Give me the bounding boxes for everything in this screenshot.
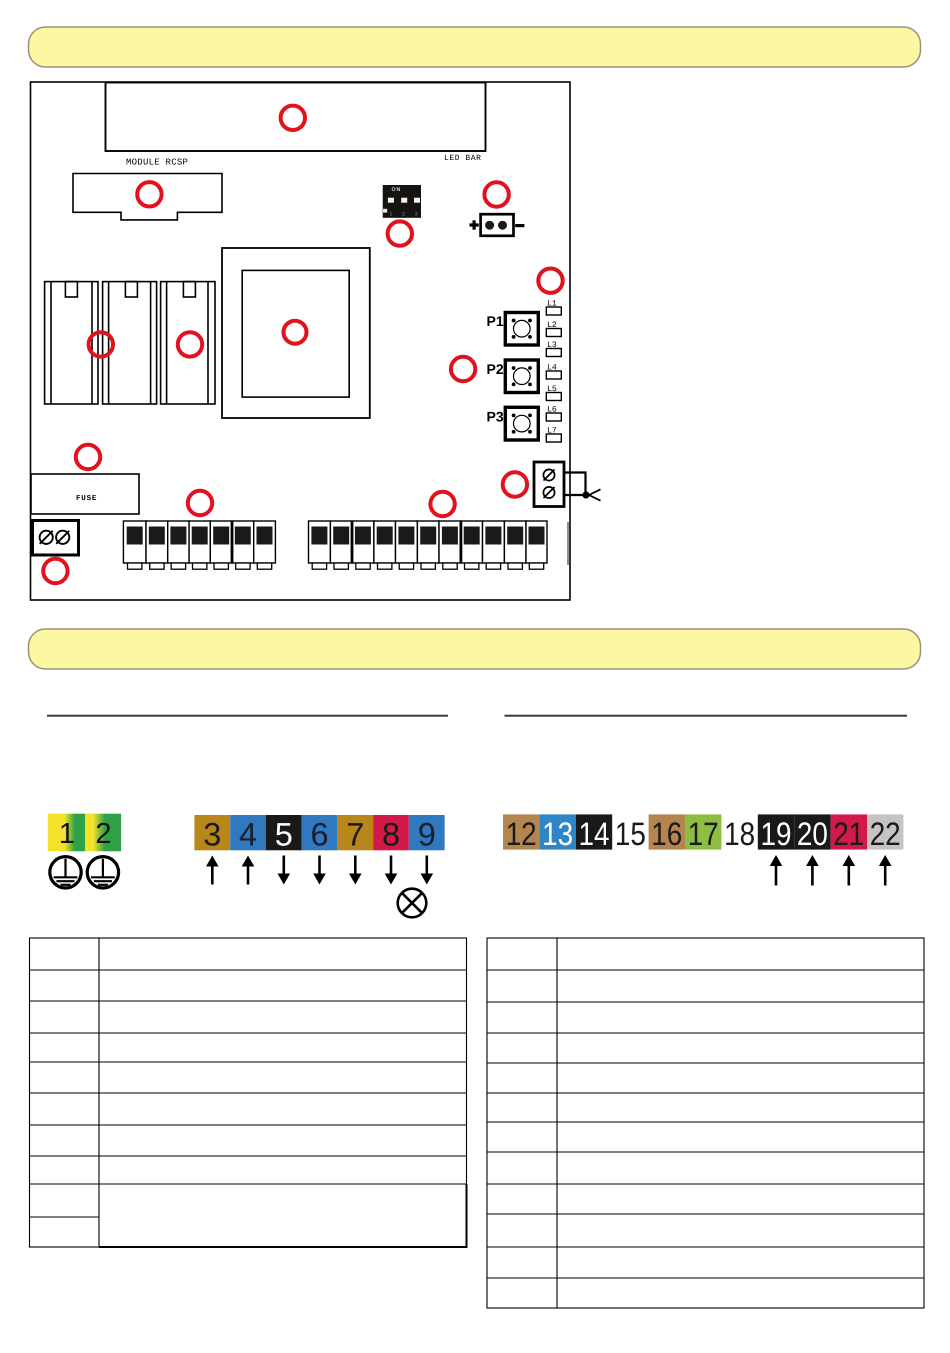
- svg-text:21: 21: [833, 816, 864, 852]
- svg-text:17: 17: [688, 816, 719, 852]
- svg-text:MODULE RCSP: MODULE RCSP: [126, 158, 188, 168]
- svg-text:15: 15: [615, 816, 646, 852]
- svg-text:13: 13: [542, 816, 573, 852]
- svg-text:22: 22: [870, 816, 901, 852]
- svg-text:P3: P3: [487, 409, 504, 425]
- svg-text:19: 19: [761, 816, 792, 852]
- svg-text:12: 12: [506, 816, 537, 852]
- svg-text:16: 16: [651, 816, 682, 852]
- svg-text:4: 4: [239, 816, 257, 852]
- svg-text:7: 7: [346, 816, 364, 852]
- svg-text:14: 14: [579, 816, 610, 852]
- svg-text:20: 20: [797, 816, 828, 852]
- svg-text:ON: ON: [392, 187, 402, 193]
- svg-text:1: 1: [390, 212, 393, 218]
- svg-text:P1: P1: [487, 313, 504, 329]
- svg-text:3: 3: [203, 816, 221, 852]
- svg-text:2: 2: [402, 212, 405, 218]
- svg-text:1: 1: [59, 818, 75, 850]
- svg-text:5: 5: [275, 816, 293, 852]
- svg-text:LED BAR: LED BAR: [444, 154, 481, 163]
- svg-text:6: 6: [310, 816, 328, 852]
- svg-text:9: 9: [418, 816, 436, 852]
- svg-text:8: 8: [382, 816, 400, 852]
- svg-text:P2: P2: [487, 361, 504, 377]
- svg-text:18: 18: [724, 816, 755, 852]
- svg-text:FUSE: FUSE: [76, 494, 97, 503]
- svg-text:2: 2: [95, 818, 111, 850]
- svg-text:3: 3: [415, 212, 418, 218]
